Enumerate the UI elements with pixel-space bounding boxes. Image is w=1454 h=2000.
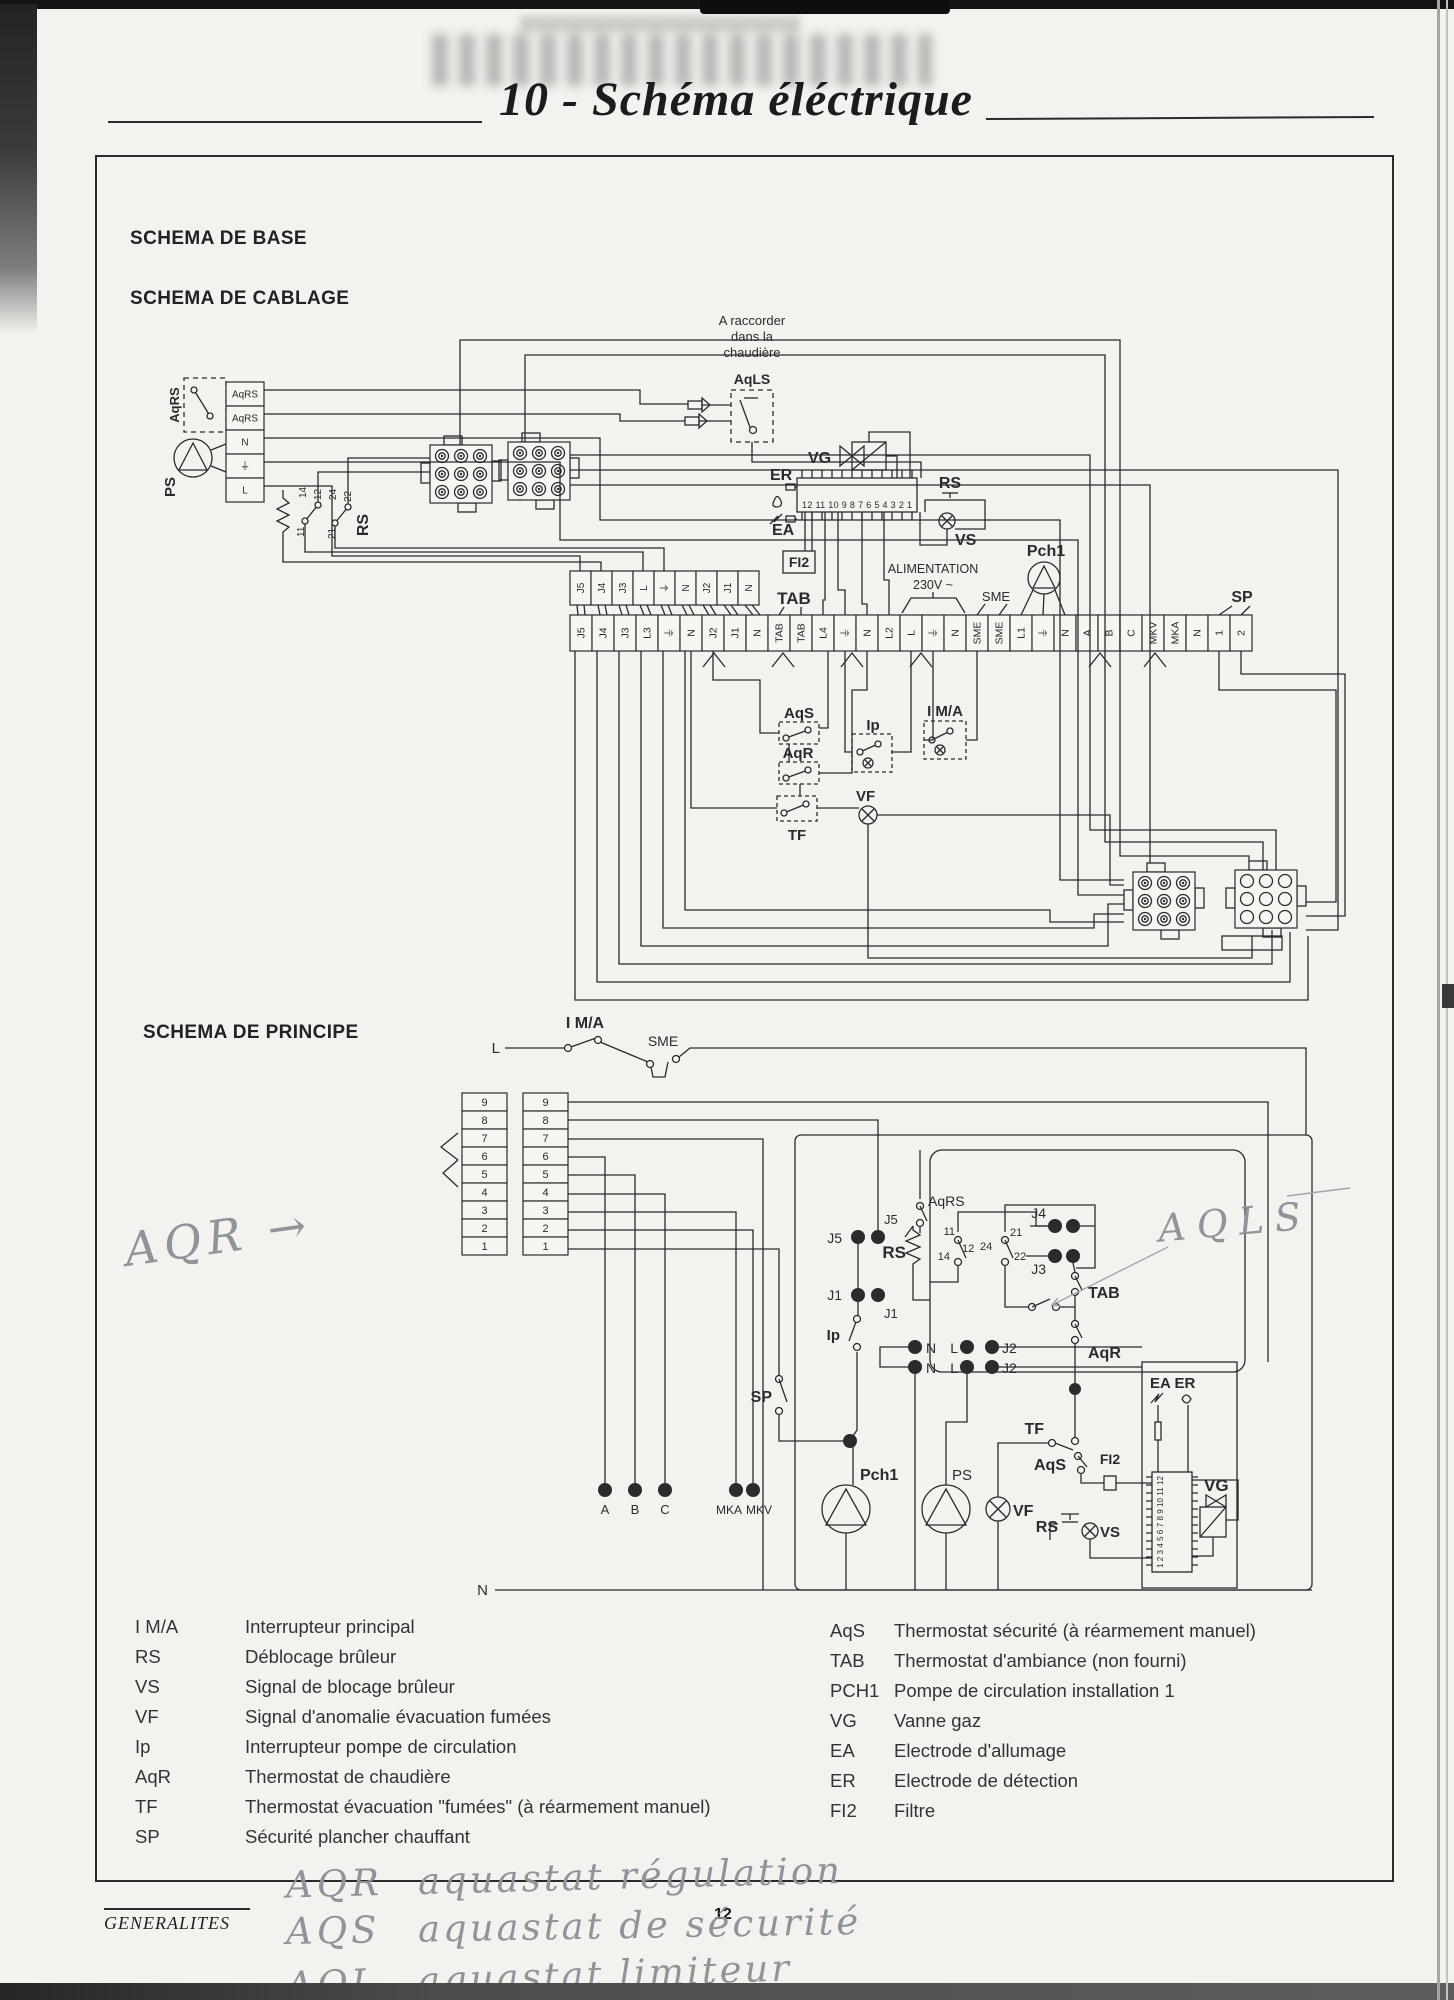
svg-text:N: N [241,438,248,449]
svg-text:AqRS: AqRS [232,414,258,425]
svg-text:⏚: ⏚ [840,628,852,639]
label-l-line: L [492,1040,500,1057]
svg-text:J1: J1 [730,627,742,638]
schema-principe-diagram: L I M/A SME 987654321 987654321 [441,1015,1350,1599]
svg-text:N: N [1060,629,1072,637]
svg-text:SME: SME [972,622,984,645]
label-vg-cablage: VG [808,450,831,467]
legend-description: Electrode d'allumage [894,1736,1066,1766]
label-j3: J3 [1031,1261,1046,1277]
label-j5-right: J5 [884,1212,898,1227]
contact-11: 11 [944,1226,955,1238]
svg-text:J3: J3 [620,627,632,638]
svg-text:SME: SME [994,622,1006,645]
label-vg-principe: VG [1204,1476,1229,1495]
page-edge-line [1437,0,1440,2000]
legend-row: RSDéblocage brûleur [135,1642,711,1672]
legend-symbol: I M/A [135,1612,245,1642]
svg-text:N: N [686,629,698,637]
handwritten-abbr: AQR [286,1860,419,1906]
legend-row: TABThermostat d'ambiance (non fourni) [830,1646,1256,1676]
legend-symbol: VG [830,1706,894,1736]
label-rs-button-principe: RS [1036,1519,1059,1536]
label-n-row2: N [926,1360,936,1376]
svg-text:7: 7 [542,1133,548,1145]
label-j2-row1: J2 [1002,1340,1017,1356]
label-alimentation: ALIMENTATION [888,562,979,576]
label-ea-cablage: EA [772,522,795,539]
label-j1-left: J1 [827,1287,842,1303]
handwritten-line: AQRaquastat régulation [286,1848,862,1906]
svg-text:J5: J5 [576,582,587,593]
svg-text:4: 4 [481,1187,487,1199]
svg-text:C: C [1126,629,1138,637]
label-ima-principe: I M/A [566,1015,605,1032]
svg-text:⏚: ⏚ [1038,628,1050,639]
label-tab-principe: TAB [1088,1285,1120,1302]
svg-text:⏚: ⏚ [664,628,676,639]
svg-text:2: 2 [481,1223,487,1235]
contact-22: 22 [1014,1251,1026,1263]
controller-pin-numbers-cablage: 12 11 10 9 8 7 6 5 4 3 2 1 [802,500,912,510]
connector-9pin-bottom-female [1226,861,1306,937]
label-n-line: N [477,1582,488,1599]
terminal-b: B [631,1502,640,1517]
label-fi2-cablage: FI2 [789,554,809,570]
contact-14: 14 [938,1251,950,1263]
label-pch1-principe: Pch1 [860,1467,898,1484]
legend-symbol: ER [830,1766,894,1796]
principe-wires [495,1102,1312,1590]
svg-text:2: 2 [1236,630,1248,636]
label-j1-right: J1 [884,1306,898,1321]
connector-9pin-left [421,436,501,512]
legend-symbol: AqS [830,1616,894,1646]
label-l-row1: L [950,1340,958,1356]
svg-text:9: 9 [542,1097,548,1109]
legend-description: Thermostat sécurité (à réarmement manuel… [894,1616,1256,1646]
legend-description: Vanne gaz [894,1706,981,1736]
label-aqr-cablage: AqR [783,745,814,762]
legend-row: EAElectrode d'allumage [830,1736,1256,1766]
label-fi2-principe: FI2 [1100,1451,1120,1467]
legend-row: AqSThermostat sécurité (à réarmement man… [830,1616,1256,1646]
legend-row: VGVanne gaz [830,1706,1256,1736]
legend-symbol: TF [135,1792,245,1822]
rs-contact-24: 24 [328,488,339,500]
scan-bottom-edge [0,1983,1454,2000]
svg-text:L4: L4 [818,627,830,639]
label-tf-cablage: TF [788,827,806,844]
svg-text:N: N [1192,629,1204,637]
svg-text:AqRS: AqRS [232,390,258,401]
svg-text:⏚: ⏚ [240,461,250,473]
scan-top-mark [700,0,950,14]
handwritten-text: aquastat régulation [417,1849,843,1903]
label-l-row2: L [950,1360,958,1376]
svg-text:L3: L3 [642,627,654,639]
contact-24: 24 [980,1241,992,1253]
svg-text:TAB: TAB [774,623,786,643]
terminal-strip-upper: J5J4J3L⏚NJ2J1N [570,571,759,605]
legend-row: PCH1Pompe de circulation installation 1 [830,1676,1256,1706]
svg-text:8: 8 [481,1115,487,1127]
svg-text:L2: L2 [884,627,896,639]
handwritten-line: AQSaquastat de sécurité [286,1900,862,1953]
handwritten-footer-notes: AQRaquastat régulationAQSaquastat de séc… [286,1856,861,2000]
label-vf-principe: VF [1013,1503,1034,1520]
svg-text:1: 1 [481,1241,487,1253]
note-line-2: dans la [731,329,774,344]
label-sp-cablage: SP [1231,589,1253,606]
note-line-1: A raccorder [719,313,786,328]
legend-row: SPSécurité plancher chauffant [135,1822,711,1852]
svg-text:⏚: ⏚ [659,583,671,593]
svg-text:3: 3 [481,1205,487,1217]
label-aqs-principe: AqS [1034,1457,1066,1474]
svg-text:9: 9 [481,1097,487,1109]
legend-description: Thermostat de chaudière [245,1762,451,1792]
legend-symbol: EA [830,1736,894,1766]
svg-text:N: N [752,629,764,637]
svg-text:7: 7 [481,1133,487,1145]
legend-description: Interrupteur principal [245,1612,415,1642]
svg-text:6: 6 [542,1151,548,1163]
label-ea-er: EA ER [1150,1375,1195,1392]
legend-row: TFThermostat évacuation "fumées" (à réar… [135,1792,711,1822]
svg-text:2: 2 [542,1223,548,1235]
label-sp-principe: SP [751,1389,773,1406]
label-ip-cablage: Ip [866,717,879,734]
svg-text:4: 4 [542,1187,548,1199]
label-ps-principe: PS [952,1467,972,1484]
label-aqr-principe: AqR [1088,1345,1121,1362]
connector-9pin-right [499,433,579,509]
label-sme-cablage: SME [982,589,1011,604]
svg-text:L: L [639,585,650,591]
svg-text:⏚: ⏚ [928,628,940,639]
svg-text:5: 5 [481,1169,487,1181]
label-aqls: AqLS [734,371,771,387]
svg-text:A: A [1082,629,1094,636]
connector-9pin-bottom-male [1124,863,1204,939]
legend-symbol: FI2 [830,1796,894,1826]
legend-row: VSSignal de blocage brûleur [135,1672,711,1702]
svg-text:3: 3 [542,1205,548,1217]
legend-symbol: VF [135,1702,245,1732]
svg-text:1: 1 [1214,630,1226,636]
rs-contact-14: 14 [298,486,309,498]
scan-right-mark [1442,984,1454,1008]
svg-text:J1: J1 [723,582,734,593]
legend-symbol: TAB [830,1646,894,1676]
svg-text:MKA: MKA [1170,622,1182,645]
legend-row: ERElectrode de détection [830,1766,1256,1796]
legend-symbol: AqR [135,1762,245,1792]
pin-block-right: 987654321 [523,1093,568,1255]
label-tf-principe: TF [1024,1421,1044,1438]
label-rs-button-cablage: RS [939,475,962,492]
svg-text:L: L [906,630,918,636]
label-ps-cablage: PS [162,477,179,497]
footer-tab: GENERALITES [104,1908,250,1934]
legend-description: Interrupteur pompe de circulation [245,1732,516,1762]
label-aqrs-principe: AqRS [928,1193,965,1209]
legend-description: Signal de blocage brûleur [245,1672,455,1702]
legend-row: AqRThermostat de chaudière [135,1762,711,1792]
scanned-page: 10 - Schéma éléctrique SCHEMA DE BASE SC… [0,0,1454,2000]
legend-row: I M/AInterrupteur principal [135,1612,711,1642]
svg-text:8: 8 [542,1115,548,1127]
terminal-stack-left: AqRSAqRSN⏚L [226,382,264,502]
terminal-c: C [660,1502,669,1517]
svg-text:N: N [950,629,962,637]
legend-row: VFSignal d'anomalie évacuation fumées [135,1702,711,1732]
legend-description: Déblocage brûleur [245,1642,396,1672]
controller-pin-numbers-principe: 1 2 3 4 5 6 7 8 9 10 11 12 [1156,1475,1165,1568]
label-aqs-cablage: AqS [784,705,814,722]
legend-description: Thermostat d'ambiance (non fourni) [894,1646,1186,1676]
svg-text:TAB: TAB [796,623,808,643]
svg-text:J5: J5 [576,627,588,638]
legend-right-column: AqSThermostat sécurité (à réarmement man… [830,1616,1256,1826]
legend-description: Signal d'anomalie évacuation fumées [245,1702,551,1732]
legend-row: IpInterrupteur pompe de circulation [135,1732,711,1762]
handwritten-abbr: AQS [286,1908,419,1953]
svg-text:J4: J4 [598,627,610,638]
contact-12: 12 [962,1243,974,1255]
svg-text:L: L [242,486,248,497]
label-vs-principe: VS [1100,1524,1120,1541]
svg-text:N: N [862,629,874,637]
legend-description: Filtre [894,1796,935,1826]
svg-text:J2: J2 [702,582,713,593]
label-rs-relay: RS [355,514,372,537]
legend-left-column: I M/AInterrupteur principalRSDéblocage b… [135,1612,711,1852]
label-tab-cablage: TAB [777,589,811,608]
legend-symbol: Ip [135,1732,245,1762]
legend-description: Thermostat évacuation "fumées" (à réarme… [245,1792,711,1822]
svg-text:L1: L1 [1016,627,1028,639]
legend-description: Electrode de détection [894,1766,1078,1796]
note-line-3: chaudière [723,345,780,360]
svg-text:N: N [681,584,692,591]
legend-symbol: RS [135,1642,245,1672]
legend-symbol: PCH1 [830,1676,894,1706]
svg-text:J2: J2 [708,627,720,638]
label-rs-principe: RS [882,1243,906,1262]
label-j5-left: J5 [827,1230,842,1246]
legend-row: FI2Filtre [830,1796,1256,1826]
handwritten-text: aquastat de sécurité [418,1900,862,1951]
terminal-mka: MKA [716,1503,742,1517]
label-j2-row2: J2 [1002,1360,1017,1376]
label-230v: 230V ~ [913,578,953,592]
label-j4: J4 [1031,1205,1046,1221]
svg-text:6: 6 [481,1151,487,1163]
terminal-a: A [601,1502,610,1517]
legend-description: Sécurité plancher chauffant [245,1822,470,1852]
legend-symbol: SP [135,1822,245,1852]
label-aqrs-cablage: AqRS [167,387,182,423]
label-n-row1: N [926,1340,936,1356]
label-vf-cablage: VF [856,788,875,805]
schema-cablage-diagram: AqRS AqRSAqRSN⏚L PS 14 12 24 22 11 21 RS… [162,313,1345,1000]
svg-text:N: N [744,584,755,591]
pin-block-left: 987654321 [462,1093,507,1255]
svg-text:5: 5 [542,1169,548,1181]
legend-description: Pompe de circulation installation 1 [894,1676,1175,1706]
svg-text:J3: J3 [618,582,629,593]
svg-text:J4: J4 [597,582,608,593]
contact-21: 21 [1010,1227,1022,1239]
scan-left-shadow [0,4,37,334]
legend-symbol: VS [135,1672,245,1702]
label-sme-principe: SME [648,1033,678,1049]
svg-text:1: 1 [542,1241,548,1253]
terminal-mkv: MKV [746,1503,772,1517]
label-ip-principe: Ip [827,1327,840,1344]
